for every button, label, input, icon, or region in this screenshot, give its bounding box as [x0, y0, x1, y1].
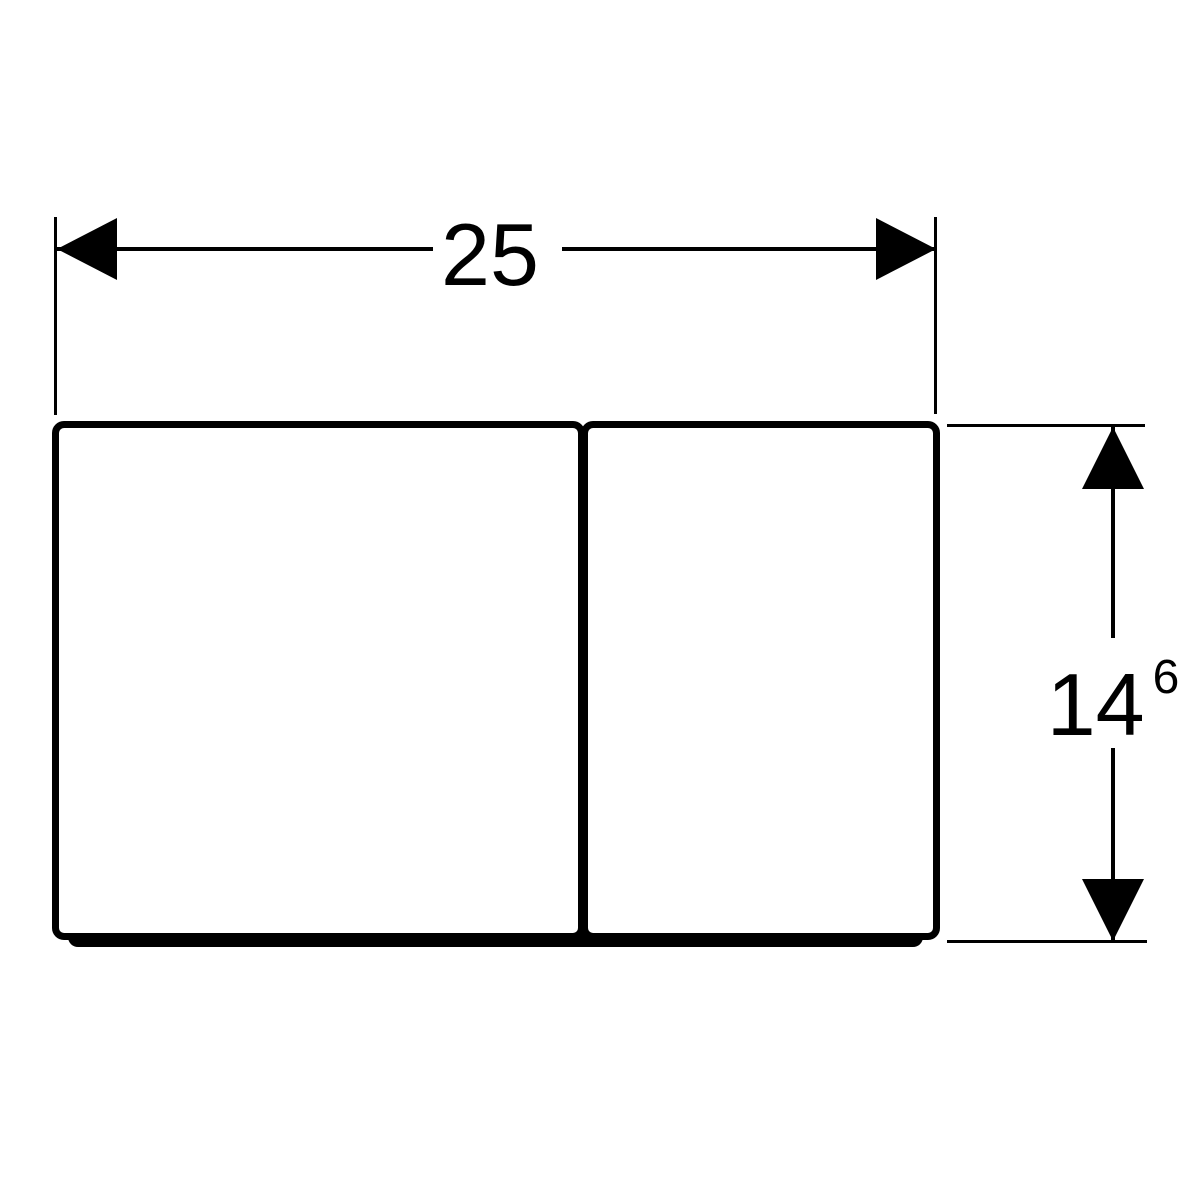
arrowhead-down-icon	[1082, 879, 1144, 941]
height-dimension-value: 14	[1047, 661, 1145, 749]
flush-plate-dimension-drawing: 25 146	[0, 0, 1200, 1200]
height-dimension-superscript: 6	[1153, 654, 1180, 702]
flush-button-left	[52, 421, 585, 940]
width-dimension-label: 25	[441, 211, 539, 299]
height-dimension-label: 146	[1047, 661, 1180, 749]
arrowhead-up-icon	[1082, 427, 1144, 489]
flush-button-right	[581, 421, 940, 940]
arrowhead-left-icon	[57, 218, 117, 280]
arrowhead-right-icon	[876, 218, 936, 280]
